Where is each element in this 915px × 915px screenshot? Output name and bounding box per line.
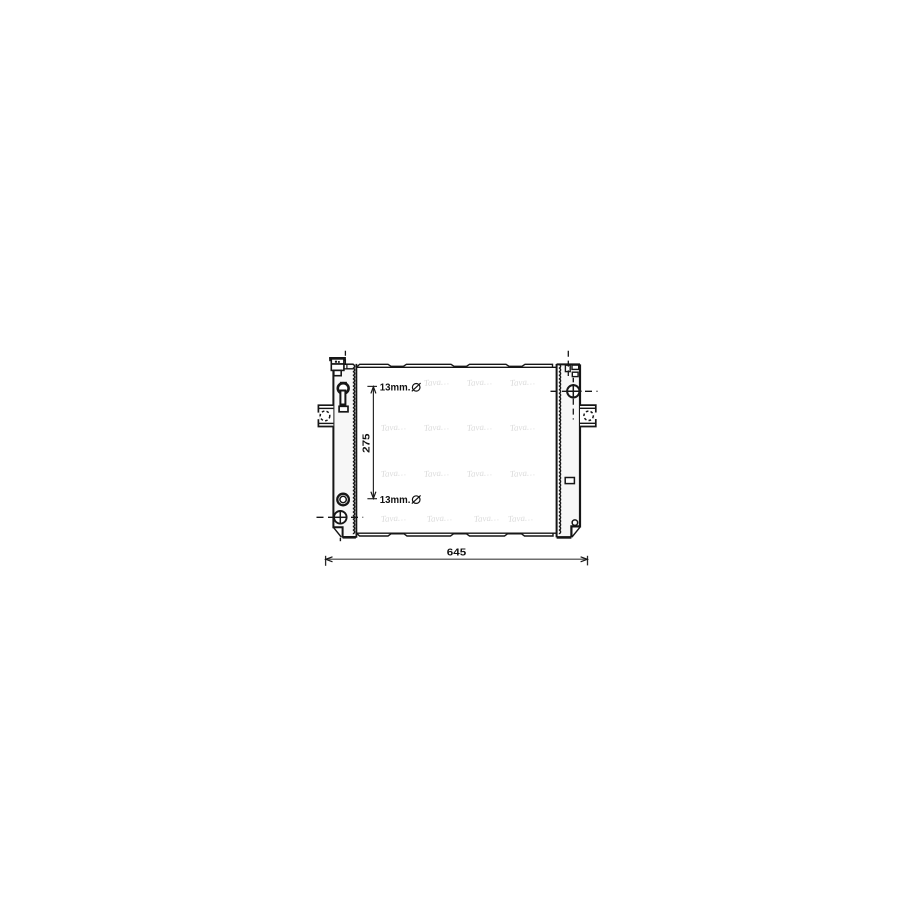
svg-text:Tava…: Tava…	[473, 512, 499, 524]
svg-text:Tava…: Tava…	[380, 421, 406, 433]
svg-text:Tava…: Tava…	[466, 467, 492, 479]
svg-text:13mm.: 13mm.	[380, 494, 411, 506]
svg-text:Tava…: Tava…	[380, 467, 406, 479]
svg-text:Tava…: Tava…	[509, 376, 535, 388]
svg-text:275: 275	[360, 433, 372, 453]
svg-text:Tava…: Tava…	[466, 376, 492, 388]
svg-text:Tava…: Tava…	[423, 421, 449, 433]
svg-text:13mm.: 13mm.	[380, 382, 411, 394]
svg-text:Tava…: Tava…	[507, 512, 533, 524]
svg-text:Tava…: Tava…	[426, 512, 452, 524]
svg-text:Tava…: Tava…	[466, 421, 492, 433]
svg-text:Tava…: Tava…	[423, 467, 449, 479]
svg-text:Tava…: Tava…	[423, 376, 449, 388]
svg-text:Tava…: Tava…	[380, 512, 406, 524]
svg-text:Tava…: Tava…	[509, 467, 535, 479]
svg-text:645: 645	[447, 547, 467, 559]
svg-text:Tava…: Tava…	[509, 421, 535, 433]
